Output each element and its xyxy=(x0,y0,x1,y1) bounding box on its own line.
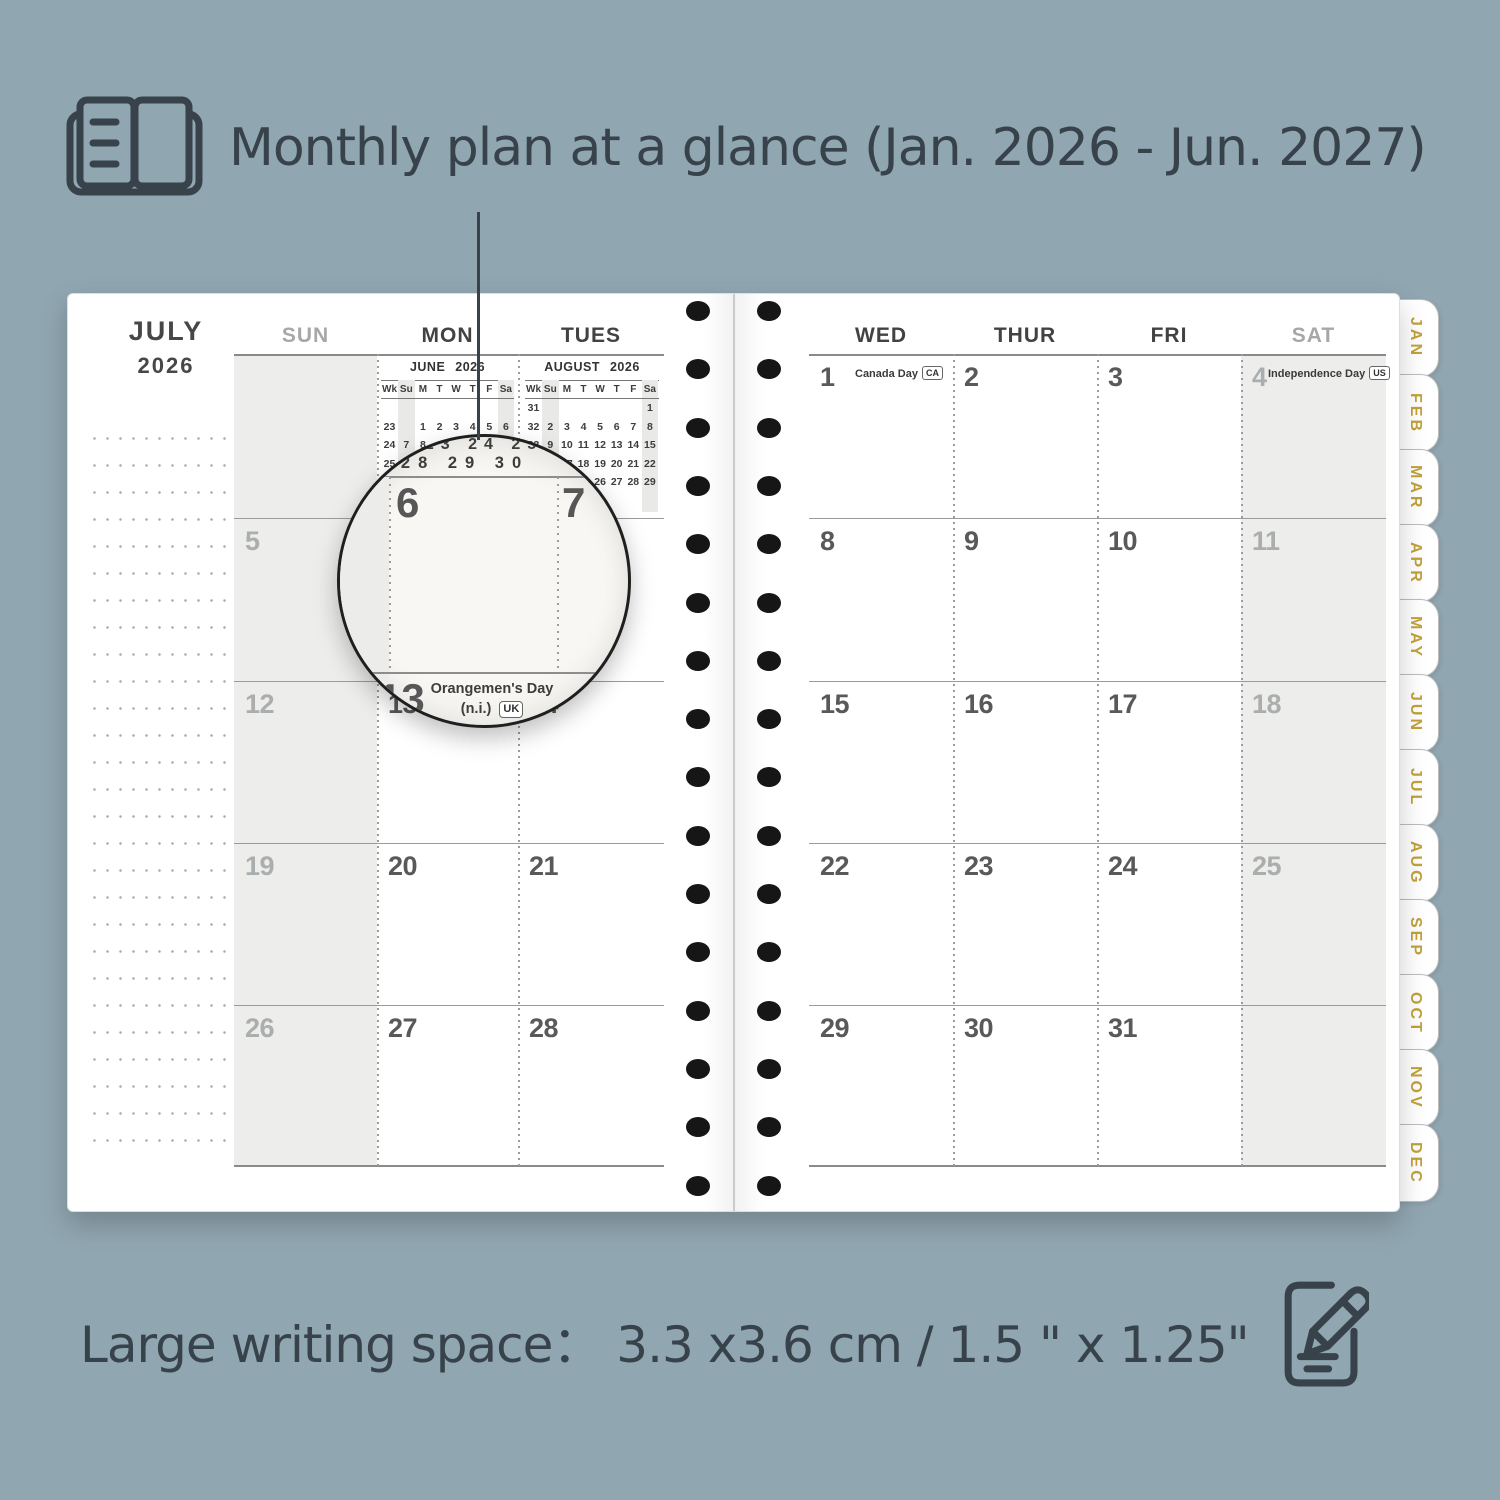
binding-hole xyxy=(757,651,781,671)
day-header-wed: WED xyxy=(809,324,953,348)
lens-grid-line xyxy=(340,672,628,674)
binding-hole xyxy=(757,709,781,729)
mini-dow-label: T xyxy=(575,384,592,395)
mini-dow-label: M xyxy=(559,384,576,395)
tab-label: AUG xyxy=(1406,841,1424,886)
right-date-16: 16 xyxy=(964,689,993,720)
left-date-19: 19 xyxy=(245,851,274,882)
grid-row-line xyxy=(234,1165,664,1167)
binding-hole xyxy=(757,1117,781,1137)
mini-dow-label: F xyxy=(625,384,642,395)
left-date-20: 20 xyxy=(388,851,417,882)
binding-hole xyxy=(757,359,781,379)
grid-row-line xyxy=(234,1005,664,1006)
tab-label: APR xyxy=(1406,542,1424,585)
tab-label: DEC xyxy=(1406,1142,1424,1185)
holiday-country-tag: CA xyxy=(922,366,943,380)
dot-grid-notes-area xyxy=(86,421,233,1162)
binding-hole xyxy=(686,476,710,496)
tab-label: MAR xyxy=(1406,465,1424,510)
holiday-independence-day: Independence DayUS xyxy=(1268,366,1390,380)
left-date-28: 28 xyxy=(529,1013,558,1044)
mini-week-number: 32 xyxy=(525,421,542,433)
mini-calendar-line xyxy=(381,398,514,399)
mini-dow-label: Sa xyxy=(498,384,515,395)
tab-label: JUL xyxy=(1406,768,1424,807)
mini-date: 29 xyxy=(642,476,659,488)
lens-minical-row: 22 23 24 25 26 xyxy=(340,436,628,454)
lens-holiday-name: Orangemen's Day xyxy=(431,681,554,697)
callout-pointer-line xyxy=(477,212,480,440)
mini-date: 2 xyxy=(431,421,448,433)
right-page-grid: 1Canada DayCA234Independence DayUS891011… xyxy=(809,354,1386,1167)
lens-minical-row: 27 28 29 30 xyxy=(354,454,529,473)
right-date-17: 17 xyxy=(1108,689,1137,720)
lens-column-divider xyxy=(389,477,391,672)
month-year: 2026 xyxy=(116,353,216,379)
mini-date: 27 xyxy=(608,476,625,488)
right-date-18: 18 xyxy=(1252,689,1281,720)
left-date-5: 5 xyxy=(245,526,260,557)
right-date-29: 29 xyxy=(820,1013,849,1044)
mini-date: 15 xyxy=(642,439,659,451)
holiday-canada-day: Canada DayCA xyxy=(855,366,943,380)
lens-holiday-suffix: (n.i.) xyxy=(461,701,492,717)
product-image-canvas: Monthly plan at a glance (Jan. 2026 - Ju… xyxy=(0,0,1500,1500)
mini-dow-label: W xyxy=(448,384,465,395)
tab-label: FEB xyxy=(1406,393,1424,434)
right-date-8: 8 xyxy=(820,526,835,557)
lens-date-7: 7 xyxy=(562,479,585,527)
day-header-fri: FRI xyxy=(1097,324,1241,348)
mini-date: 22 xyxy=(642,458,659,470)
grid-column-divider xyxy=(953,354,955,1167)
left-date-26: 26 xyxy=(245,1013,274,1044)
page-gap-line xyxy=(733,294,735,1211)
mini-dow-label: Su xyxy=(398,384,415,395)
left-date-12: 12 xyxy=(245,689,274,720)
month-name: JULY xyxy=(116,316,216,347)
right-date-22: 22 xyxy=(820,851,849,882)
right-date-31: 31 xyxy=(1108,1013,1137,1044)
mini-week-number: 23 xyxy=(381,421,398,433)
mini-date: 6 xyxy=(608,421,625,433)
lens-column-divider xyxy=(557,477,559,672)
mini-date: 5 xyxy=(592,421,609,433)
binding-hole xyxy=(686,301,710,321)
binding-hole xyxy=(757,418,781,438)
grid-column-divider xyxy=(1241,354,1243,1167)
lens-holiday-country-tag: UK xyxy=(499,701,523,718)
mini-dow-label: T xyxy=(608,384,625,395)
right-date-10: 10 xyxy=(1108,526,1137,557)
mini-dow-label: F xyxy=(481,384,498,395)
magnifier-lens: 22 23 24 25 26 27 28 29 30 6 7 13 Orange… xyxy=(337,434,631,728)
mini-dow-label: Wk xyxy=(525,384,542,395)
binding-hole xyxy=(757,534,781,554)
mini-date: 21 xyxy=(625,458,642,470)
right-date-24: 24 xyxy=(1108,851,1137,882)
mini-date: 3 xyxy=(559,421,576,433)
right-date-9: 9 xyxy=(964,526,979,557)
right-day-headers: WEDTHURFRISAT xyxy=(809,324,1386,348)
binding-hole xyxy=(757,1059,781,1079)
grid-column-divider xyxy=(1097,354,1099,1167)
tab-label: JUN xyxy=(1406,692,1424,733)
mini-dow-label: Wk xyxy=(381,384,398,395)
tab-label: OCT xyxy=(1406,992,1424,1035)
lens-date-6: 6 xyxy=(396,479,419,527)
headline-monthly-plan: Monthly plan at a glance (Jan. 2026 - Ju… xyxy=(229,118,1426,178)
tab-label: SEP xyxy=(1406,917,1424,958)
mini-date: 8 xyxy=(642,421,659,433)
mini-date: 3 xyxy=(448,421,465,433)
day-header-sat: SAT xyxy=(1241,324,1386,348)
day-header-thur: THUR xyxy=(953,324,1097,348)
left-day-headers: SUNMONTUES xyxy=(234,324,664,348)
binding-hole xyxy=(757,476,781,496)
binding-hole xyxy=(686,1001,710,1021)
mini-dow-label: M xyxy=(415,384,432,395)
right-date-15: 15 xyxy=(820,689,849,720)
mini-date: 1 xyxy=(415,421,432,433)
binding-hole xyxy=(757,301,781,321)
binding-hole xyxy=(686,651,710,671)
binding-hole xyxy=(686,1176,710,1196)
mini-calendar-title: JUNE 2026 xyxy=(381,360,514,374)
right-date-30: 30 xyxy=(964,1013,993,1044)
binding-hole xyxy=(686,1059,710,1079)
right-date-11: 11 xyxy=(1252,526,1280,557)
pencil-writing-icon xyxy=(1275,1272,1369,1403)
day-header-tues: TUES xyxy=(518,324,664,348)
planner-spread: JULY 2026 SUNMONTUES WEDTHURFRISAT 56712… xyxy=(67,293,1400,1212)
binding-hole xyxy=(686,593,710,613)
mini-date: 6 xyxy=(498,421,515,433)
right-date-4: 4 xyxy=(1252,362,1267,393)
binding-hole xyxy=(686,418,710,438)
mini-date: 28 xyxy=(625,476,642,488)
mini-dow-label: W xyxy=(592,384,609,395)
binding-hole xyxy=(757,884,781,904)
binding-hole xyxy=(686,826,710,846)
open-planner-book-icon xyxy=(62,93,207,204)
binding-hole xyxy=(686,709,710,729)
mini-date: 20 xyxy=(608,458,625,470)
weekend-column-shading xyxy=(1241,354,1386,1167)
binding-hole xyxy=(686,884,710,904)
headline-writing-space: Large writing space： 3.3 x3.6 cm / 1.5 "… xyxy=(80,1305,1249,1377)
day-header-sun: SUN xyxy=(234,324,377,348)
binding-hole xyxy=(757,767,781,787)
binding-hole xyxy=(757,593,781,613)
mini-date: 5 xyxy=(481,421,498,433)
mini-calendar-title: AUGUST 2026 xyxy=(525,360,659,374)
left-date-21: 21 xyxy=(529,851,558,882)
right-date-1: 1 xyxy=(820,362,835,393)
mini-dow-label: T xyxy=(431,384,448,395)
day-header-mon: MON xyxy=(377,324,518,348)
mini-date: 4 xyxy=(575,421,592,433)
right-date-23: 23 xyxy=(964,851,993,882)
binding-hole xyxy=(757,1176,781,1196)
binding-hole xyxy=(757,942,781,962)
right-date-3: 3 xyxy=(1108,362,1123,393)
lens-date-13: 13 xyxy=(378,675,425,723)
mini-date: 19 xyxy=(592,458,609,470)
tab-label: NOV xyxy=(1406,1066,1424,1110)
tab-label: MAY xyxy=(1406,616,1424,659)
lens-holiday-orangemens-day: Orangemen's Day (n.i.) UK xyxy=(426,679,558,719)
mini-week-number: 31 xyxy=(525,402,542,414)
tab-label: JAN xyxy=(1406,317,1424,358)
grid-row-line xyxy=(234,843,664,844)
holiday-country-tag: US xyxy=(1369,366,1390,380)
right-date-25: 25 xyxy=(1252,851,1281,882)
right-date-2: 2 xyxy=(964,362,979,393)
mini-date: 2 xyxy=(542,421,559,433)
mini-dow-label: Su xyxy=(542,384,559,395)
mini-date: 1 xyxy=(642,402,659,414)
mini-date: 7 xyxy=(625,421,642,433)
binding-hole xyxy=(757,826,781,846)
mini-dow-label: Sa xyxy=(642,384,659,395)
month-title-block: JULY 2026 xyxy=(116,316,216,379)
left-date-27: 27 xyxy=(388,1013,417,1044)
binding-hole xyxy=(757,1001,781,1021)
mini-calendar-line xyxy=(525,398,659,399)
